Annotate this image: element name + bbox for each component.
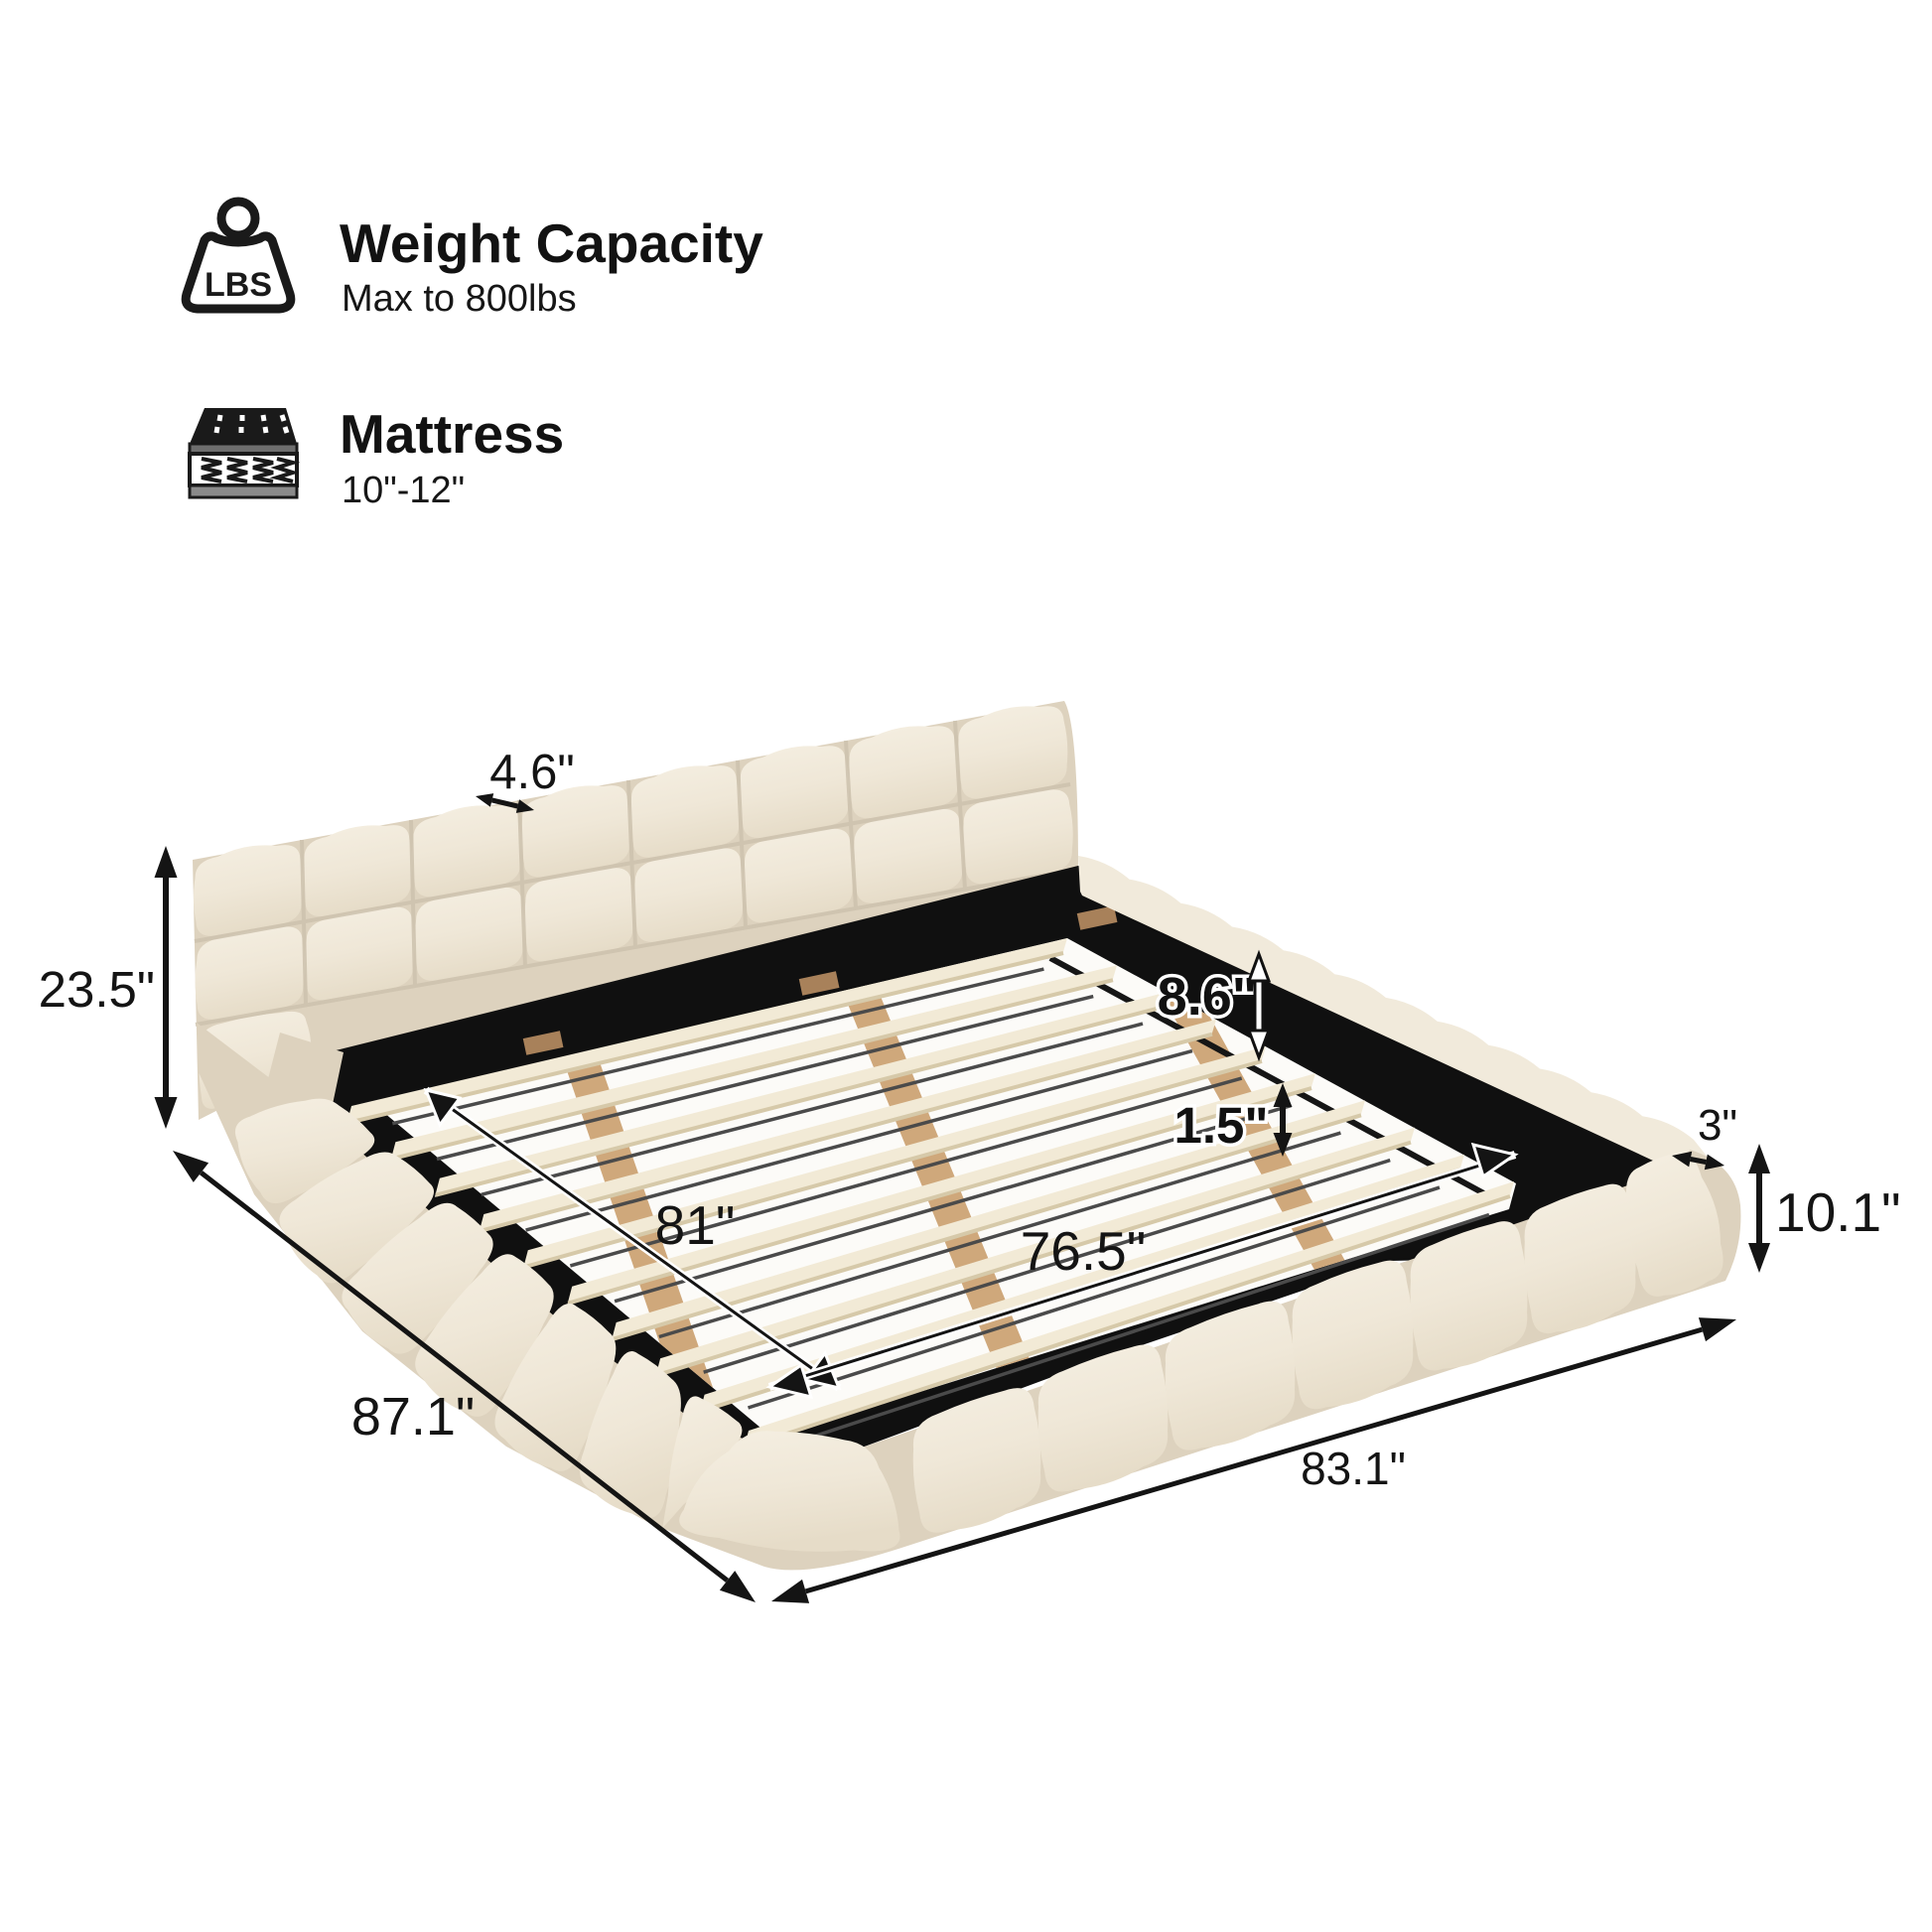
svg-text:8.6": 8.6" — [1158, 967, 1258, 1027]
svg-text:Max to 800lbs: Max to 800lbs — [342, 278, 577, 320]
svg-text:LBS: LBS — [205, 266, 272, 304]
svg-text:10"-12": 10"-12" — [342, 470, 465, 511]
svg-text:87.1": 87.1" — [351, 1387, 475, 1447]
svg-text:81": 81" — [655, 1194, 736, 1256]
svg-text:Mattress: Mattress — [340, 403, 564, 465]
svg-text:3": 3" — [1698, 1101, 1737, 1150]
svg-text:83.1": 83.1" — [1301, 1443, 1406, 1494]
svg-text:Weight Capacity: Weight Capacity — [340, 212, 763, 274]
svg-text:4.6": 4.6" — [489, 746, 575, 799]
svg-text:10.1": 10.1" — [1775, 1181, 1901, 1243]
svg-text:1.5": 1.5" — [1173, 1097, 1268, 1154]
svg-text:23.5": 23.5" — [39, 961, 155, 1018]
